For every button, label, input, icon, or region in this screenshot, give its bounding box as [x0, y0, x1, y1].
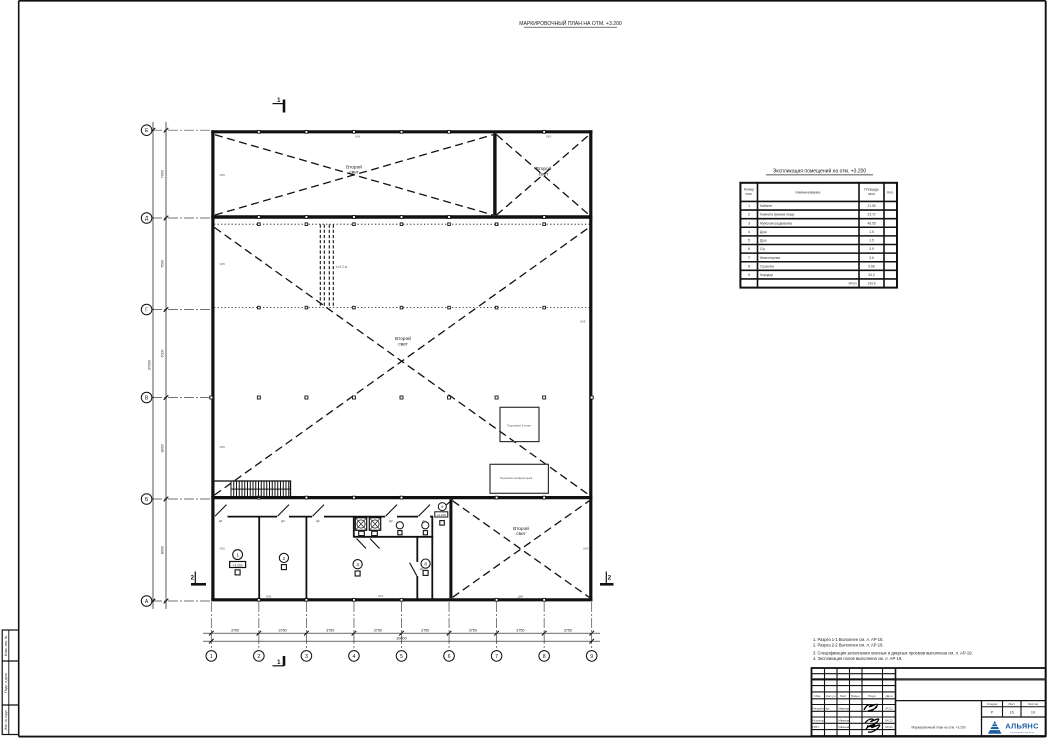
svg-text:5: 5 [400, 654, 403, 660]
svg-text:04.21: 04.21 [885, 719, 893, 723]
svg-text:3750: 3750 [279, 628, 287, 632]
svg-text:Иванов: Иванов [839, 725, 850, 729]
svg-text:+0.200: +0.200 [437, 513, 447, 517]
svg-text:8: 8 [543, 654, 546, 660]
svg-text:Г: Г [145, 308, 148, 314]
svg-text:1: 1 [210, 654, 213, 660]
svg-text:Подъемник 2-этажн.: Подъемник 2-этажн. [507, 423, 532, 427]
svg-text:Сушилка: Сушилка [760, 264, 774, 268]
svg-text:3750: 3750 [374, 628, 382, 632]
svg-text:Душ: Душ [760, 239, 767, 243]
svg-text:3: 3 [748, 221, 750, 225]
svg-text:Н.контр.: Н.контр. [813, 719, 825, 723]
svg-text:1.5: 1.5 [869, 230, 874, 234]
svg-text:строительная компания: строительная компания [1010, 732, 1035, 734]
svg-text:Изм.: Изм. [814, 694, 821, 698]
svg-text:7000: 7000 [161, 170, 165, 178]
svg-text:30000: 30000 [396, 636, 406, 640]
svg-text:Кол.: Кол. [887, 191, 894, 195]
svg-text:3. Спецификация заполнения око: 3. Спецификация заполнения оконных и две… [813, 651, 973, 656]
svg-text:3750: 3750 [421, 628, 429, 632]
svg-text:9: 9 [590, 654, 593, 660]
svg-text:1: 1 [236, 553, 239, 558]
svg-text:Листов: Листов [1028, 702, 1038, 706]
svg-text:Душ: Душ [760, 230, 767, 234]
svg-text:9: 9 [748, 273, 750, 277]
svg-text:АЛЬЯНС: АЛЬЯНС [1005, 722, 1039, 731]
svg-text:3.6: 3.6 [869, 256, 874, 260]
svg-text:3: 3 [356, 562, 359, 567]
svg-text:Стадия: Стадия [987, 702, 998, 706]
svg-text:Мужская раздевалка: Мужская раздевалка [760, 221, 792, 225]
svg-text:7: 7 [748, 256, 750, 260]
svg-text:1.5: 1.5 [869, 239, 874, 243]
svg-text:кв.м: кв.м [868, 192, 875, 196]
svg-text:ОК5: ОК5 [220, 173, 226, 177]
svg-text:8: 8 [748, 264, 750, 268]
svg-text:Номер: Номер [744, 188, 755, 192]
svg-text:2: 2 [257, 654, 260, 660]
svg-text:Д2: Д2 [316, 519, 320, 523]
svg-text:1. Разрез 1-1 Выполнен см. л.: 1. Разрез 1-1 Выполнен см. л. АР-18. [813, 637, 884, 642]
svg-text:Д2: Д2 [219, 519, 223, 523]
svg-text:Кабинет: Кабинет [760, 204, 773, 208]
svg-text:37000: 37000 [148, 360, 152, 370]
svg-text:Второй: Второй [513, 525, 529, 532]
svg-text:ГИП: ГИП [813, 725, 819, 729]
svg-text:ОК4: ОК4 [355, 135, 361, 139]
svg-text:4: 4 [353, 654, 356, 660]
svg-text:7: 7 [495, 654, 498, 660]
svg-text:Взам. инв. №: Взам. инв. № [4, 635, 8, 656]
svg-text:3750: 3750 [469, 628, 477, 632]
svg-text:МАРКИРОВОЧНЫЙ ПЛАН НА ОТМ. +3.: МАРКИРОВОЧНЫЙ ПЛАН НА ОТМ. +3.200 [519, 19, 622, 27]
svg-text:23.72: 23.72 [867, 213, 875, 217]
svg-text:+3.200: +3.200 [233, 563, 243, 567]
svg-text:Лист: Лист [1008, 702, 1015, 706]
svg-text:3750: 3750 [326, 628, 334, 632]
svg-text:Иванов: Иванов [839, 706, 850, 710]
svg-text:С/у: С/у [760, 247, 765, 251]
svg-text:ОК9: ОК9 [580, 320, 586, 324]
svg-text:ОК5: ОК5 [220, 547, 226, 551]
svg-text:ДК8: ДК8 [518, 595, 524, 599]
svg-text:19: 19 [1031, 711, 1035, 715]
svg-text:Иванов: Иванов [839, 719, 850, 723]
svg-text:8000: 8000 [161, 444, 165, 452]
svg-text:5: 5 [748, 239, 750, 243]
svg-text:Дата: Дата [886, 694, 893, 698]
svg-text:свет: свет [398, 342, 408, 347]
svg-text:2: 2 [283, 556, 286, 561]
svg-text:Инвентарная: Инвентарная [760, 256, 780, 260]
svg-text:h=3.2 м: h=3.2 м [336, 265, 347, 269]
svg-text:4. Экспликация полов выполнена: 4. Экспликация полов выполнена см. л. АР… [813, 656, 902, 661]
svg-text:Инв. № подл.: Инв. № подл. [4, 710, 8, 731]
svg-text:Д2: Д2 [389, 519, 393, 523]
svg-text:свет: свет [516, 532, 526, 537]
svg-text:3750: 3750 [516, 628, 524, 632]
svg-text:2: 2 [748, 213, 750, 217]
svg-text:8: 8 [424, 562, 427, 567]
svg-text:Подп.: Подп. [868, 694, 876, 698]
svg-text:3.9: 3.9 [869, 247, 874, 251]
svg-text:свет: свет [349, 171, 359, 176]
svg-text:21.55: 21.55 [867, 204, 875, 208]
svg-text:пом.: пом. [746, 192, 753, 196]
svg-text:Д3: Д3 [281, 519, 285, 523]
svg-text:143.9: 143.9 [867, 282, 875, 286]
svg-text:ОК3: ОК3 [546, 135, 552, 139]
svg-text:Разработал: Разработал [813, 706, 830, 710]
svg-text:1: 1 [748, 204, 750, 208]
svg-text:Р: Р [991, 711, 994, 715]
svg-text:34.2: 34.2 [868, 273, 875, 277]
svg-text:04.21: 04.21 [885, 706, 893, 710]
svg-text:№док.: №док. [851, 694, 860, 698]
svg-text:6: 6 [448, 654, 451, 660]
svg-text:ОК6: ОК6 [266, 595, 272, 599]
svg-text:16: 16 [1010, 711, 1014, 715]
svg-text:Маркировочный план на отм. +3.: Маркировочный план на отм. +3.200 [911, 726, 965, 730]
svg-text:Второй: Второй [395, 335, 411, 342]
svg-text:Коридор: Коридор [760, 273, 773, 277]
svg-text:ОК5: ОК5 [220, 262, 226, 266]
svg-text:Подъемник конференцный: Подъемник конференцный [500, 476, 533, 480]
svg-text:Лист: Лист [840, 694, 847, 698]
svg-text:8000: 8000 [161, 546, 165, 554]
svg-text:Наименование: Наименование [796, 191, 821, 195]
svg-text:48.05: 48.05 [867, 221, 875, 225]
svg-text:ОК8: ОК8 [583, 547, 589, 551]
svg-text:2. Разрез 2-2 Выполнен см. л.: 2. Разрез 2-2 Выполнен см. л. АР-18. [813, 643, 884, 648]
svg-text:04.21: 04.21 [885, 725, 893, 729]
svg-text:Комната приема пищи: Комната приема пищи [760, 213, 794, 217]
svg-text:Подп. и дата: Подп. и дата [4, 673, 8, 693]
svg-text:свет: свет [539, 172, 549, 177]
svg-text:3750: 3750 [231, 628, 239, 632]
svg-text:ОК5: ОК5 [220, 445, 226, 449]
svg-text:7000: 7000 [161, 349, 165, 357]
svg-text:Второй: Второй [346, 163, 362, 170]
svg-text:ОК7: ОК7 [378, 594, 384, 598]
svg-text:Итого: Итого [849, 282, 858, 286]
svg-text:Кол.уч: Кол.уч [826, 694, 836, 698]
svg-text:Второй: Второй [536, 165, 552, 172]
svg-text:Площадь: Площадь [864, 188, 879, 192]
svg-text:5.88: 5.88 [868, 264, 875, 268]
svg-text:3750: 3750 [564, 628, 572, 632]
svg-text:6: 6 [748, 247, 750, 251]
svg-text:Экспликация помещений на отм.: Экспликация помещений на отм. +3.200 [773, 168, 867, 175]
svg-text:7000: 7000 [161, 260, 165, 268]
svg-text:3: 3 [305, 654, 308, 660]
svg-text:9: 9 [441, 505, 443, 509]
svg-text:4: 4 [748, 230, 750, 234]
